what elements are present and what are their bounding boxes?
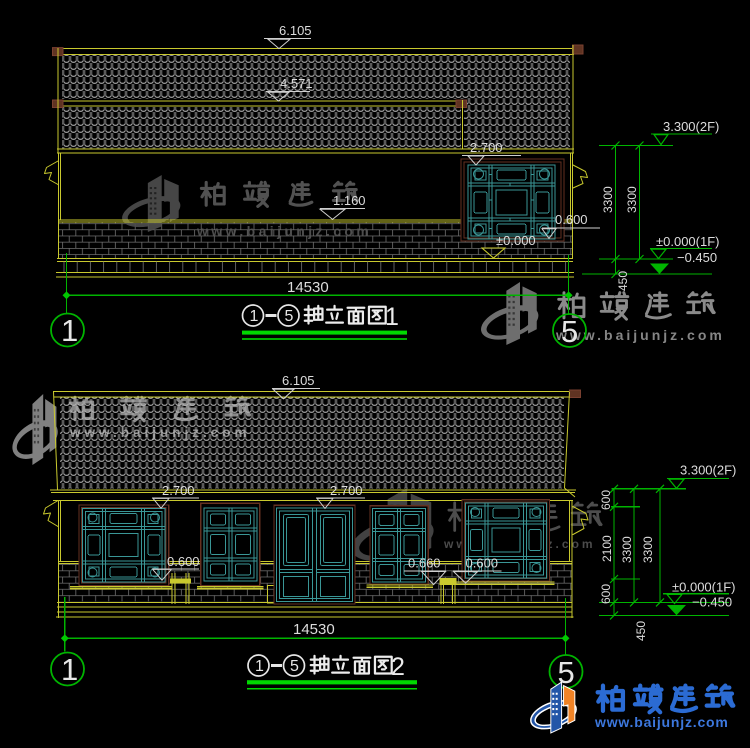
svg-text:3300: 3300 — [641, 536, 655, 563]
svg-text:2.700: 2.700 — [162, 483, 195, 498]
svg-text:2.700: 2.700 — [470, 140, 503, 155]
svg-text:3300: 3300 — [625, 186, 639, 213]
svg-text:1: 1 — [61, 652, 78, 687]
svg-text:5: 5 — [561, 314, 578, 349]
svg-text:−0.450: −0.450 — [677, 250, 717, 265]
svg-text:3.300(2F): 3.300(2F) — [663, 119, 719, 134]
svg-text:14530: 14530 — [287, 279, 329, 296]
svg-text:0.600: 0.600 — [466, 556, 499, 571]
svg-text:1: 1 — [61, 313, 78, 348]
svg-text:600: 600 — [599, 584, 613, 604]
svg-text:2.700: 2.700 — [330, 483, 363, 498]
svg-text:450: 450 — [634, 621, 648, 641]
svg-text:3300: 3300 — [601, 186, 615, 213]
svg-text:www.baijunjz.com: www.baijunjz.com — [69, 425, 251, 440]
svg-text:5: 5 — [285, 308, 294, 325]
svg-text:3300: 3300 — [620, 536, 634, 563]
svg-text:0.660: 0.660 — [408, 556, 441, 571]
svg-text:0.600: 0.600 — [555, 212, 588, 227]
svg-text:600: 600 — [599, 490, 613, 510]
svg-text:±0.000(1F): ±0.000(1F) — [656, 234, 720, 249]
svg-text:1: 1 — [250, 308, 259, 325]
svg-text:www.baijunjz.com: www.baijunjz.com — [196, 223, 372, 239]
svg-text:1: 1 — [385, 303, 399, 331]
svg-text:www.baijunjz.com: www.baijunjz.com — [594, 714, 729, 730]
svg-text:−0.450: −0.450 — [692, 595, 732, 610]
svg-text:2100: 2100 — [600, 535, 614, 562]
svg-text:1.160: 1.160 — [333, 193, 366, 208]
svg-text:5: 5 — [290, 658, 299, 675]
svg-text:0.600: 0.600 — [167, 554, 200, 569]
svg-text:www.baijunjz.com: www.baijunjz.com — [555, 327, 725, 343]
svg-text:3.300(2F): 3.300(2F) — [680, 463, 736, 478]
svg-text:450: 450 — [616, 271, 630, 291]
svg-text:1: 1 — [255, 658, 264, 675]
svg-text:±0.000(1F): ±0.000(1F) — [672, 580, 736, 595]
svg-text:6.105: 6.105 — [279, 23, 312, 38]
svg-text:6.105: 6.105 — [282, 373, 315, 388]
svg-text:14530: 14530 — [293, 621, 335, 638]
svg-text:2: 2 — [391, 653, 405, 681]
svg-text:±0.000: ±0.000 — [496, 233, 536, 248]
svg-text:4.571: 4.571 — [280, 76, 313, 91]
